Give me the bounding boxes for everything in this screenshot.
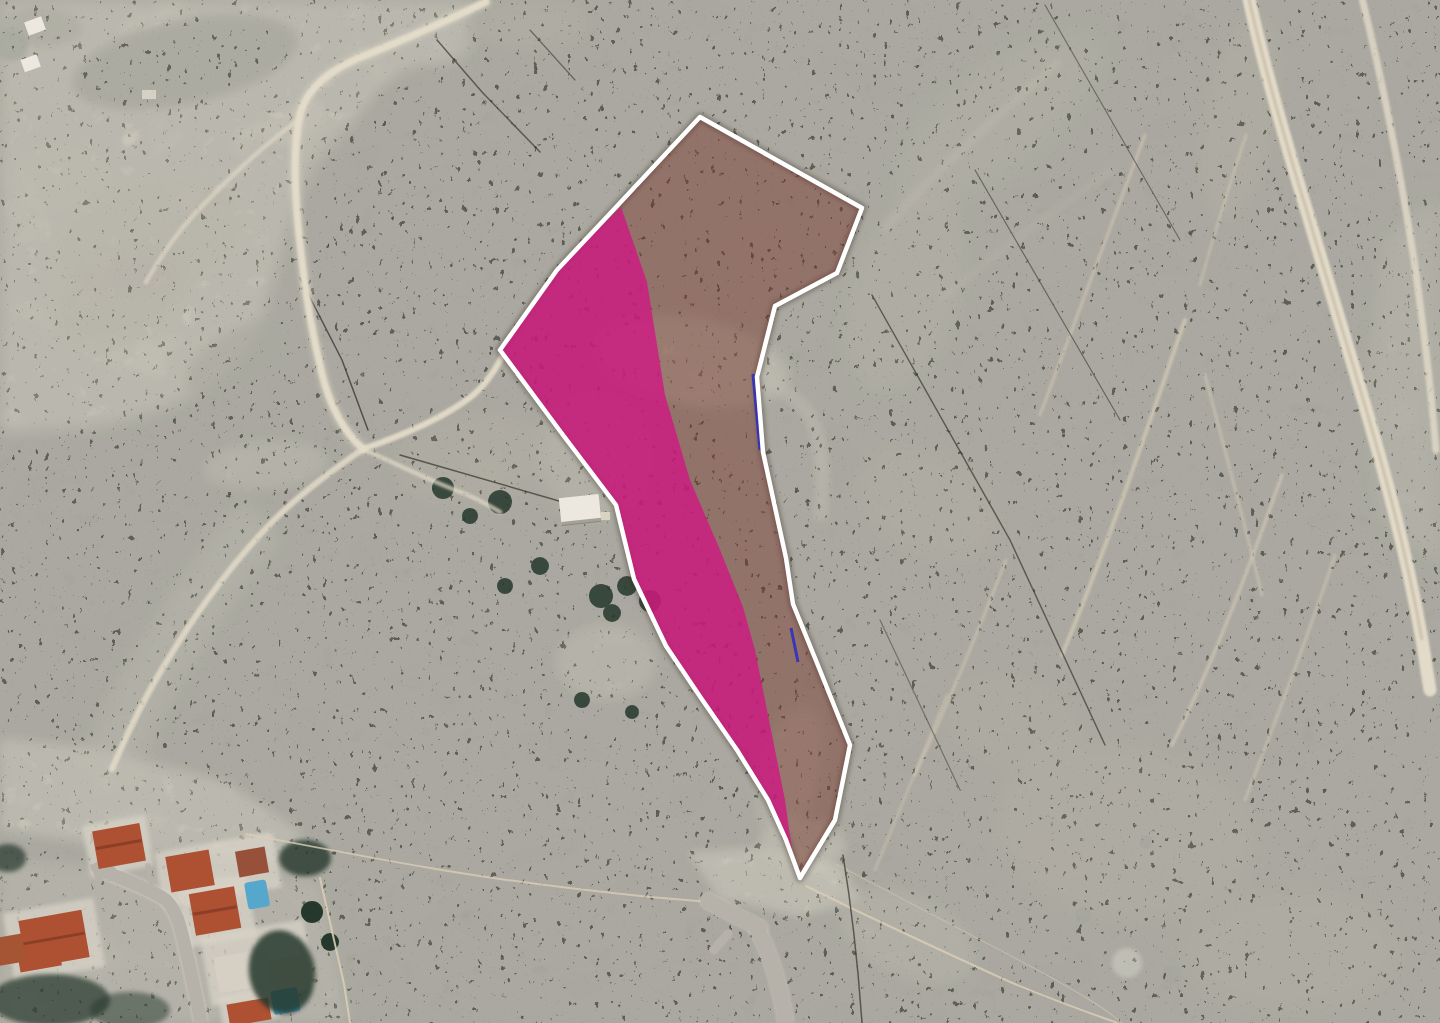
tree — [603, 604, 621, 622]
tree — [574, 692, 590, 708]
satellite-map-view[interactable] — [0, 0, 1440, 1023]
house-roof — [165, 849, 215, 892]
building — [601, 512, 610, 520]
house-roof — [235, 847, 269, 878]
building — [142, 90, 156, 99]
tree — [531, 557, 549, 575]
screenshot-root — [0, 0, 1440, 1023]
tree — [462, 508, 478, 524]
driveway — [148, 866, 152, 890]
swimming-pool — [244, 879, 270, 909]
tree — [625, 705, 639, 719]
tree — [497, 578, 513, 594]
tree — [301, 901, 323, 923]
